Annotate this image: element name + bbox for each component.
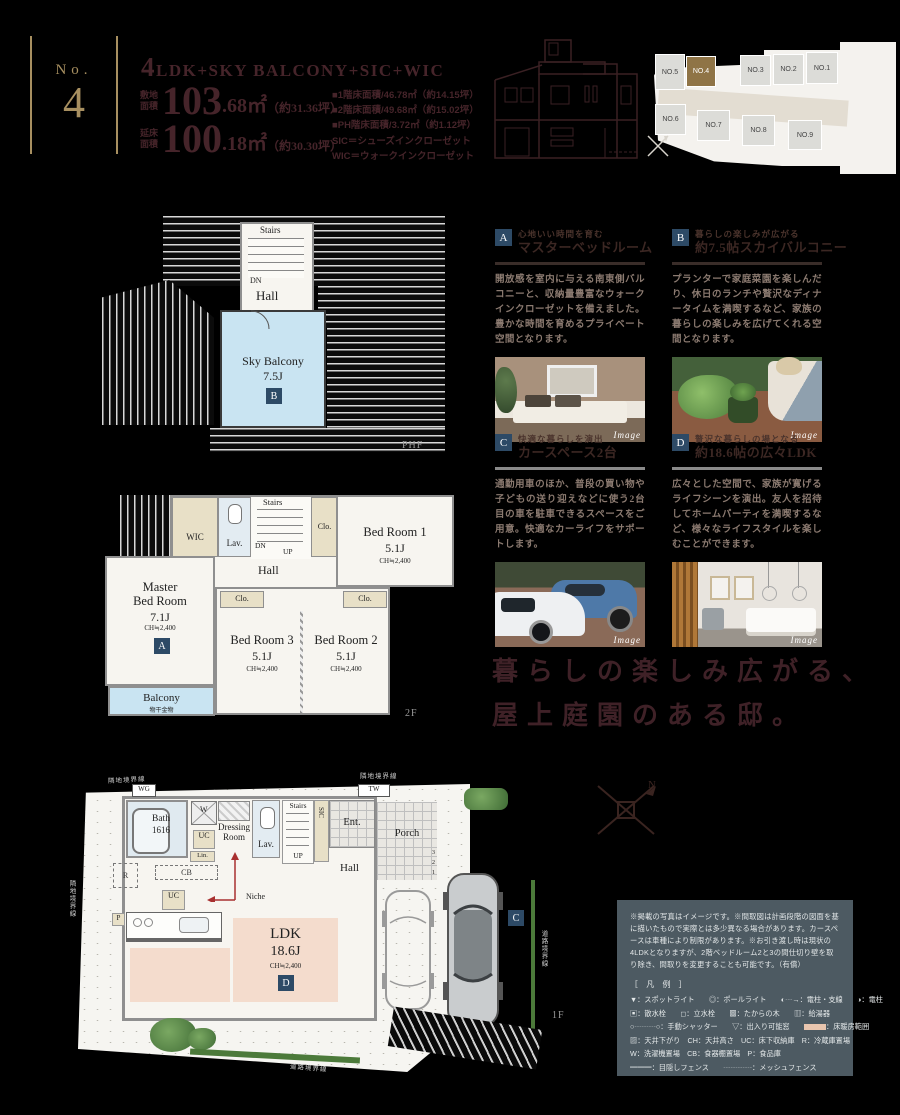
area-details: ■1階床面積/46.78㎡（約14.15坪） ■2階床面積/49.68㎡（約15… (332, 88, 492, 164)
master-ch: CH≒2,400 (107, 624, 213, 632)
bedroom3-ch: CH≒2,400 (224, 665, 300, 673)
badge-c: C (508, 910, 524, 926)
sky-balcony-label: Sky Balcony (222, 354, 324, 369)
feature-a-image: Image (495, 357, 645, 442)
bedroom2-size: 5.1J (306, 649, 386, 664)
wg-box: WG (132, 784, 156, 797)
plan-2f: WIC Lav. Stairs DN UP Clo. Bed Room 1 5.… (100, 493, 460, 733)
1f-closet-hatch (218, 801, 250, 821)
sic-label: SIC (317, 807, 325, 818)
feature-a-title: マスターベッドルーム (518, 240, 653, 255)
2f-roof-strip (120, 495, 172, 556)
garden-hedge-right (531, 880, 535, 1040)
bedroom3-label: Bed Room 3 (224, 633, 300, 648)
phf-hall-label: Hall (256, 288, 278, 304)
boundary-left-label: 隣地境界線 (66, 880, 76, 918)
clo-label-3: Clo. (221, 594, 263, 603)
flyer-page: No. 4 4LDK+SKY BALCONY+SIC+WIC 敷地 面積 103… (0, 0, 900, 1115)
feature-d-image-label: Image (791, 635, 819, 645)
badge-a: A (154, 638, 170, 654)
porch-step-2: 2 (432, 860, 435, 866)
2f-stairs-label: Stairs (263, 497, 282, 507)
1f-lav: Lav. (252, 800, 280, 858)
roof-right (327, 328, 445, 428)
site-lot-2: NO.2 (773, 54, 804, 85)
badge-d: D (278, 975, 294, 991)
compass-icon: N (592, 776, 660, 842)
catchphrase-line2: 屋上庭園のある邸。 (492, 694, 877, 738)
legend-row-lights: ▼：スポットライト ◎：ポールライト ◐┄→：電柱・支線 ◑：電柱 (630, 993, 840, 1007)
tw-box: TW (358, 784, 390, 797)
site-map-road-right (840, 42, 896, 174)
2f-clo-1: Clo. (311, 497, 338, 557)
detail-wic: WIC＝ウォークインクローゼット (332, 149, 492, 164)
plan-phf: Stairs DN Hall Sky Balcony 7.5J B PHF (90, 210, 470, 460)
master-label-2: Bed Room (107, 594, 213, 609)
feature-d-badge: D (672, 434, 689, 451)
feature-b-image: Image (672, 357, 822, 442)
feature-b-body: プランターで家庭菜園を楽しんだり、休日のランチや贅沢なディナータイムを満喫するな… (672, 273, 822, 348)
lot-number-box: No. 4 (30, 36, 118, 154)
site-map: NO.1 NO.2 NO.3 NO.4 NO.5 NO.6 NO.7 NO.8 … (648, 28, 900, 174)
feature-a-tag: 心地いい時間を育む (518, 229, 653, 239)
pantry-box: P (112, 913, 125, 926)
site-lot-6: NO.6 (655, 104, 686, 135)
land-area: 敷地 面積 103 .68㎡ （約31.36坪） (140, 84, 342, 118)
floor-area-tsubo: （約30.30坪） (267, 137, 342, 154)
1f-lav-label: Lav. (253, 839, 279, 849)
bedroom1-label: Bed Room 1 (338, 525, 452, 540)
wic-label: WIC (173, 532, 217, 542)
2f-lav: Lav. (218, 497, 251, 557)
floor-area-value: 100 (162, 122, 222, 156)
bedroom2-ch: CH≒2,400 (306, 665, 386, 673)
feature-card-d: D 贅沢な暮らしの場となる 約18.6帖の広々LDK 広々とした空間で、家族が寛… (672, 434, 822, 647)
roof-top-right (318, 286, 445, 328)
site-lot-8: NO.8 (742, 115, 775, 146)
site-lot-4-highlighted: NO.4 (686, 56, 716, 87)
plan-title-number: 4 (141, 52, 156, 82)
bedroom1-size: 5.1J (338, 541, 452, 556)
detail-1f: ■1階床面積/46.78㎡（約14.15坪） (332, 88, 492, 103)
2f-clo-2: Clo. (343, 591, 387, 608)
feature-c-tag: 快適な暮らしを演出 (518, 434, 617, 444)
ent-label: Ent. (330, 817, 374, 828)
ldk-ch: CH≒2,400 (233, 962, 338, 970)
feature-d-body: 広々とした空間で、家族が寛げるライフシーンを演出。友人を招待してホームパーティを… (672, 478, 822, 553)
site-lot-9: NO.9 (788, 120, 822, 150)
ldk-size: 18.6J (233, 944, 338, 960)
1f-sic: SIC (314, 800, 329, 862)
2f-dn-label: DN (255, 541, 266, 550)
garden-hedge-top (464, 788, 508, 810)
sky-balcony-size: 7.5J (222, 369, 324, 384)
uc-box-2: UC (162, 890, 185, 910)
feature-c-image-label: Image (614, 635, 642, 645)
clo-label-2: Clo. (344, 594, 386, 603)
feature-c-title: カースペース2台 (518, 445, 617, 460)
feature-d-title: 約18.6帖の広々LDK (695, 445, 817, 460)
2f-clo-3: Clo. (220, 591, 264, 608)
master-label-1: Master (107, 580, 213, 595)
bath-size: 1616 (152, 825, 170, 835)
porch-label: Porch (377, 828, 437, 839)
catchphrase: 暮らしの楽しみ広がる、 屋上庭園のある邸。 (492, 650, 877, 738)
feature-b-title: 約7.5帖スカイバルコニー (695, 240, 847, 255)
site-lot-7: NO.7 (697, 110, 730, 141)
detail-sic: SIC＝シューズインクローゼット (332, 134, 492, 149)
feature-b-badge: B (672, 229, 689, 246)
phf-sky-balcony: Sky Balcony 7.5J B (220, 310, 326, 428)
dressing-label-2: Room (210, 832, 258, 842)
land-area-decimal: .68㎡ (222, 89, 267, 118)
feature-c-badge: C (495, 434, 512, 451)
washer-label: W (200, 805, 208, 814)
feature-a-badge: A (495, 229, 512, 246)
2f-partition-wall (300, 611, 303, 713)
phf-stairs: Stairs DN Hall (240, 222, 314, 312)
lot-number-value: 4 (32, 79, 116, 127)
feature-c-body: 通勤用車のほか、普段の買い物や子どもの送り迎えなどに使う2台目の車を駐車できるス… (495, 478, 645, 553)
uc-box-1: UC (193, 830, 215, 849)
legend-box: ※掲載の写真はイメージです。※間取図は計画段階の図面を基に描いたもので実際とは多… (617, 900, 853, 1076)
detail-ph: ■PH階床面積/3.72㎡（約1.12坪） (332, 118, 492, 133)
1f-porch: Porch 3 2 1 (377, 802, 437, 880)
compass-n: N (648, 779, 656, 791)
hoshi-label: 物干金物 (110, 705, 213, 714)
2f-wic: WIC (172, 497, 218, 557)
roof-left (102, 280, 214, 425)
site-compass-icon (646, 134, 670, 158)
feature-b-tag: 暮らしの楽しみが広がる (695, 229, 847, 239)
floorheat-zone-2 (130, 948, 230, 1002)
car-photo (442, 870, 504, 1030)
badge-b: B (266, 388, 282, 404)
clo-label-1: Clo. (312, 522, 337, 531)
ldk-label: LDK (233, 926, 338, 943)
feature-a-body: 開放感を室内に与える南東側バルコニーと、収納量豊富なウォークインクローゼットを備… (495, 273, 645, 348)
2f-stairs: Stairs DN UP (251, 497, 311, 559)
bedroom2-label: Bed Room 2 (306, 633, 386, 648)
2f-lav-label: Lav. (219, 538, 250, 548)
balcony-label: Balcony (110, 692, 213, 704)
kitchen-counter (126, 912, 222, 942)
bedroom1-ch: CH≒2,400 (338, 557, 452, 565)
land-area-label: 敷地 面積 (140, 90, 158, 112)
legend-row-taps: ▣：散水栓 ◻：立水栓 ▩：たからの木 ▥：給湯器 (630, 1007, 840, 1021)
1f-ent: Ent. (329, 800, 375, 848)
floor-area-label: 延床 面積 (140, 128, 158, 150)
legend-row-appliances: W：洗濯機置場 CB：食器棚置場 P：食品庫 (630, 1047, 840, 1061)
2f-hall-label: Hall (258, 563, 279, 578)
detail-2f: ■2階床面積/49.68㎡（約15.02坪） (332, 103, 492, 118)
master-size: 7.1J (107, 610, 213, 625)
car-outline (380, 885, 436, 1015)
boundary-road-label: 道路境界線 (290, 1060, 328, 1073)
1f-hall-label: Hall (340, 862, 359, 874)
floor-area-decimal: .18㎡ (222, 127, 267, 156)
lot-number-label: No. (32, 62, 116, 79)
house-elevation-drawing (487, 34, 647, 162)
legend-disclaimer: ※掲載の写真はイメージです。※間取図は計画段階の図面を基に描いたもので実際とは多… (630, 911, 840, 971)
1f-stairs-label: Stairs (283, 801, 313, 810)
1f-up-label: UP (283, 851, 313, 860)
site-lot-5: NO.5 (655, 54, 685, 90)
phf-dn-label: DN (250, 276, 262, 285)
2f-bedroom1: Bed Room 1 5.1J CH≒2,400 (336, 495, 454, 587)
bath-label: Bath (152, 814, 170, 824)
2f-up-label: UP (283, 547, 293, 556)
2f-balcony: Balcony 物干金物 (108, 686, 215, 716)
feature-d-image: Image (672, 562, 822, 647)
floor-area: 延床 面積 100 .18㎡ （約30.30坪） (140, 122, 342, 156)
floorheat-swatch (804, 1024, 826, 1030)
boundary-road2-label: 道路境界線 (538, 930, 548, 968)
legend-row-ceiling: ▨：天井下がり CH：天井高さ UC：床下収納庫 R：冷蔵庫置場 (630, 1034, 840, 1048)
cupboard-box: CB (155, 865, 218, 880)
feature-card-b: B 暮らしの楽しみが広がる 約7.5帖スカイバルコニー プランターで家庭菜園を楽… (672, 229, 822, 442)
1f-floor-label: 1F (552, 1010, 565, 1021)
site-lot-3: NO.3 (740, 55, 771, 86)
legend-row-fences: ━━━：目隠しフェンス ┄┄┄┄：メッシュフェンス (630, 1061, 840, 1075)
feature-card-c: C 快適な暮らしを演出 カースペース2台 通勤用車のほか、普段の買い物や子どもの… (495, 434, 645, 647)
land-area-value: 103 (162, 84, 222, 118)
land-area-tsubo: （約31.36坪） (267, 99, 342, 116)
feature-d-tag: 贅沢な暮らしの場となる (695, 434, 817, 444)
phf-floor-label: PHF (402, 440, 423, 451)
legend-title: ［ 凡 例 ］ (630, 979, 840, 990)
dressing-label-1: Dressing (210, 822, 258, 832)
porch-step-3: 3 (432, 850, 435, 856)
2f-floor-label: 2F (405, 708, 418, 719)
phf-stairs-label: Stairs (260, 225, 281, 235)
site-lot-1: NO.1 (806, 52, 838, 84)
2f-master: Master Bed Room 7.1J CH≒2,400 A (105, 556, 215, 686)
boundary-top2-label: 隣地境界線 (360, 770, 398, 780)
legend-row-shutter: ○┄┄┄○：手動シャッター ▽：出入り可能窓 ：床暖房範囲 (630, 1020, 840, 1034)
fridge-box: R (113, 863, 138, 888)
bedroom3-size: 5.1J (224, 649, 300, 664)
porch-step-1: 1 (432, 870, 435, 876)
plan-1f: 隣地境界線 隣地境界線 隣地境界線 道路境界線 道路境界線 WG Bath 16… (60, 770, 580, 1082)
feature-c-image: Image (495, 562, 645, 647)
feature-card-a: A 心地いい時間を育む マスターベッドルーム 開放感を室内に与える南東側バルコニ… (495, 229, 645, 442)
catchphrase-line1: 暮らしの楽しみ広がる、 (492, 650, 877, 694)
1f-stairs: Stairs UP (282, 800, 314, 864)
1f-bath: Bath 1616 (126, 800, 188, 858)
